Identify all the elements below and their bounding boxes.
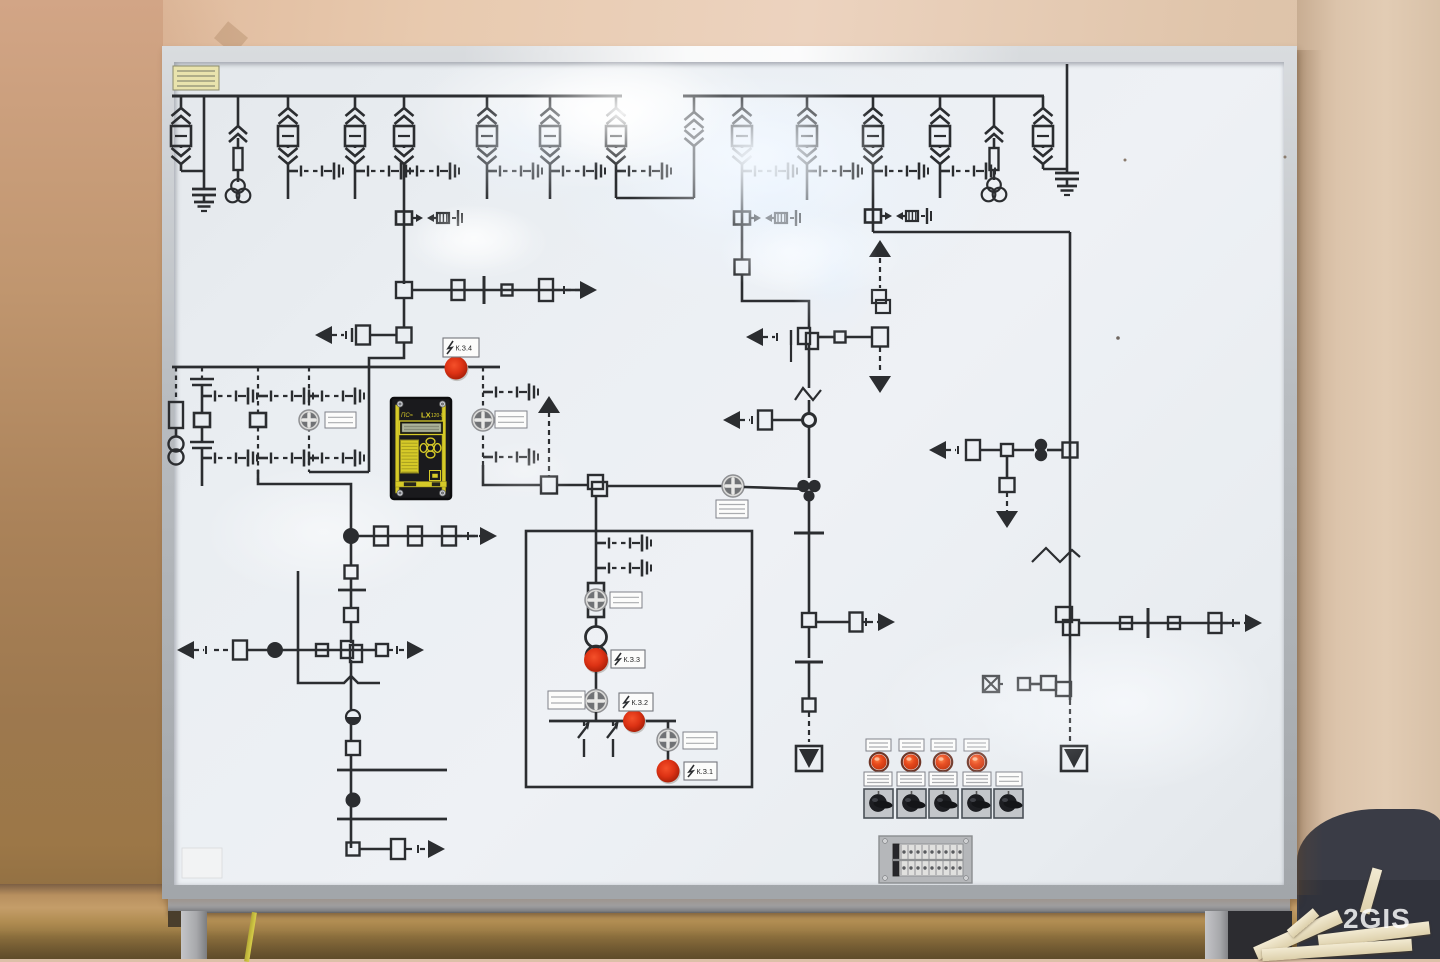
svg-text:120-В: 120-В — [431, 413, 445, 419]
svg-text:К.З.1: К.З.1 — [697, 767, 714, 776]
svg-text:LX: LX — [421, 411, 431, 420]
svg-text:ПС≈: ПС≈ — [401, 413, 414, 419]
svg-text:К.З.4: К.З.4 — [456, 343, 473, 352]
svg-text:К.З.3: К.З.3 — [624, 655, 641, 664]
svg-text:К.З.2: К.З.2 — [632, 698, 649, 707]
